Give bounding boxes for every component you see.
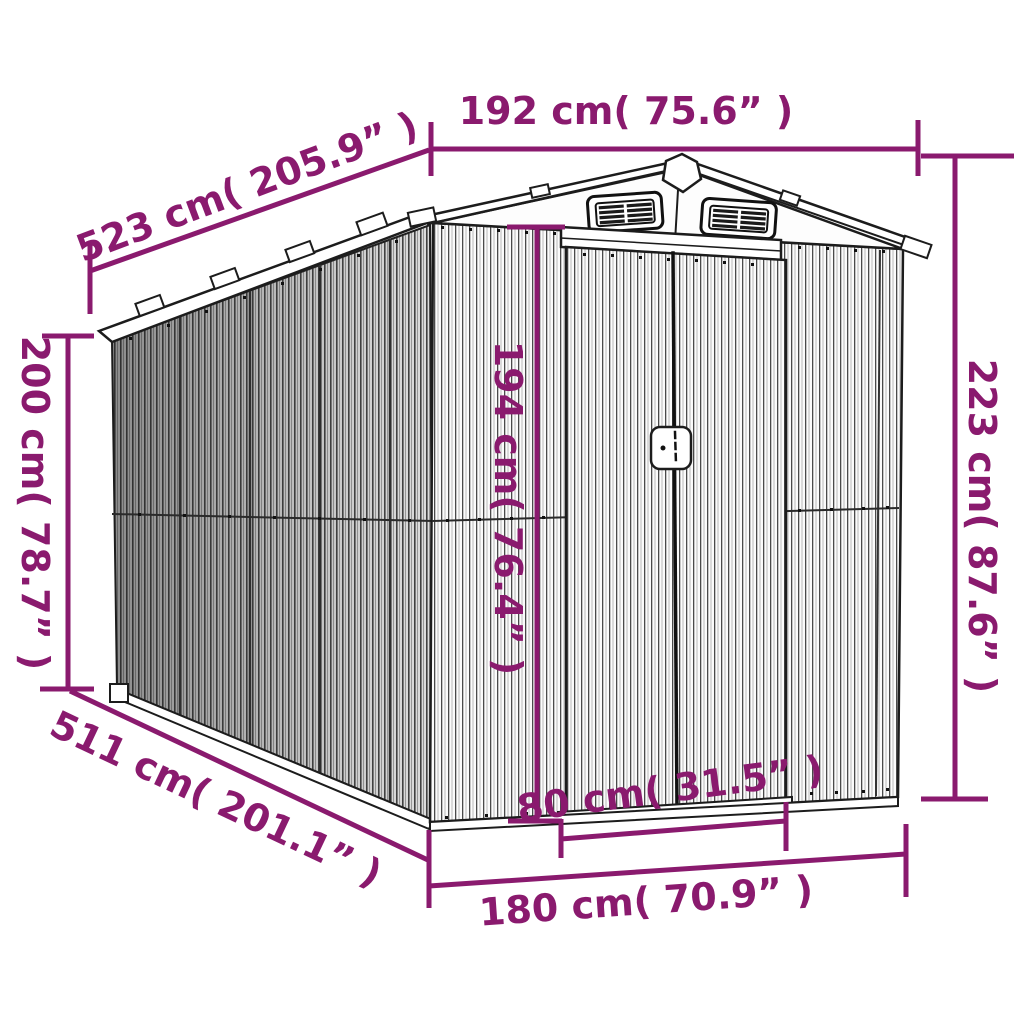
diagram-canvas: 192 cm( 75.6” ) 523 cm( 205.9” ) 200 cm(… xyxy=(0,0,1024,1024)
right-vent xyxy=(700,198,776,239)
sliding-doors xyxy=(566,247,786,817)
shed-dimension-diagram: 192 cm( 75.6” ) 523 cm( 205.9” ) 200 cm(… xyxy=(0,0,1024,1024)
gable-right-end-cap xyxy=(900,236,931,258)
front-width-label: 192 cm( 75.6” ) xyxy=(459,89,794,133)
dimension-total-height: 223 cm( 87.6” ) xyxy=(921,156,1014,799)
door-handle xyxy=(651,427,691,469)
dimension-wall-height: 200 cm( 78.7” ) xyxy=(13,336,94,689)
wall-height-label: 200 cm( 78.7” ) xyxy=(13,336,57,671)
dimension-base-width: 180 cm( 70.9” ) xyxy=(429,824,906,935)
left-vent xyxy=(587,192,663,233)
total-height-label: 223 cm( 87.6” ) xyxy=(960,359,1004,694)
door-height-label: 194 cm( 76.4” ) xyxy=(486,341,530,676)
